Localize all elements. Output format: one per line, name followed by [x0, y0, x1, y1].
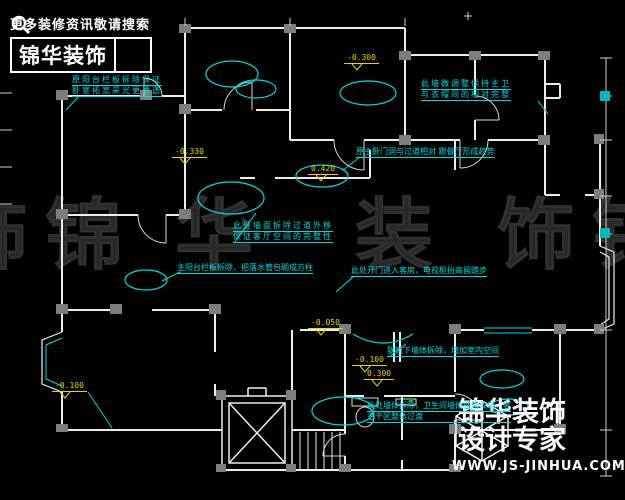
teal-marker-mid: [600, 228, 610, 238]
annotation-master-door: 原主卧门洞与过道相对 跟餐厅形成趋势: [356, 147, 495, 158]
elevation-marker: -0.050: [308, 318, 343, 329]
annotation-line: 卫干区整体过渡: [367, 412, 511, 423]
stair-treads: [300, 432, 340, 470]
elevator-door: [248, 388, 266, 396]
top-banner: 更多装修资讯敬请搜索 锦华装饰: [10, 14, 152, 73]
annotation-line: 此墙微调整保持主卫: [421, 79, 511, 90]
annotation-bay-window-wall: 飘窗下墙体拆除，增加室内空间: [387, 346, 499, 357]
annotation-line: 原主卧门洞与过道相对 跟餐厅形成趋势: [356, 147, 495, 158]
banner-brand: 锦华装饰: [12, 39, 114, 71]
annotation-line: 飘窗下墙体拆除，增加室内空间: [387, 346, 499, 357]
cad-floorplan-screenshot: 饰 锦 华 装 饰 锦: [0, 0, 625, 500]
search-box: 锦华装饰: [10, 37, 152, 73]
elevation-marker: 0.300: [364, 369, 394, 380]
elevation-marker: -0.100: [352, 355, 387, 366]
watermark-char: 锦: [45, 191, 123, 281]
elevation-marker: -0.100: [52, 381, 87, 392]
stairs: [300, 432, 340, 470]
annotation-line: 与衣帽间的相对完整: [421, 90, 511, 101]
annotation-guest-room-door: 此处开门进入客房，电视柜抬高留踏步: [351, 266, 487, 277]
annotation-line: 主阳台栏板拆除，把落水管包砌成方柱: [177, 263, 313, 274]
annotation-line: 保证客厅空间的完整性: [233, 232, 333, 243]
annotation-balcony-parapet: 原阳台栏板拆除保证 卧室拓宽采光更通透: [72, 75, 162, 97]
revision-arc: [353, 334, 413, 343]
annotation-line: 此处墙体拆除，卫生间墙体格局改造，客: [367, 401, 511, 412]
magnifier-icon: [114, 39, 150, 71]
annotation-line: 卧室拓宽采光更通透: [72, 86, 162, 97]
annotation-line: 此处墙面拆除过道外移: [233, 221, 333, 232]
annotation-bathroom-rework: 此处墙体拆除，卫生间墙体格局改造，客 卫干区整体过渡: [367, 401, 511, 423]
teal-marker-top: [600, 91, 610, 101]
elevator-shaft: [222, 388, 292, 470]
annotation-corridor-wall: 此处墙面拆除过道外移 保证客厅空间的完整性: [233, 221, 333, 243]
elevation-marker: -0.300: [344, 53, 379, 64]
watermark-char: 饰: [497, 191, 575, 281]
elevation-marker: -0.330: [172, 147, 207, 158]
annotation-balcony-pipe: 主阳台栏板拆除，把落水管包砌成方柱: [177, 263, 313, 274]
annotation-line: 此处开门进入客房，电视柜抬高留踏步: [351, 266, 487, 277]
annotation-line: 原阳台栏板拆除保证: [72, 75, 162, 86]
elevator-cross: [229, 403, 285, 463]
elevation-marker: 0.420: [308, 164, 338, 175]
annotation-master-bath-wall: 此墙微调整保持主卫 与衣帽间的相对完整: [421, 79, 511, 101]
